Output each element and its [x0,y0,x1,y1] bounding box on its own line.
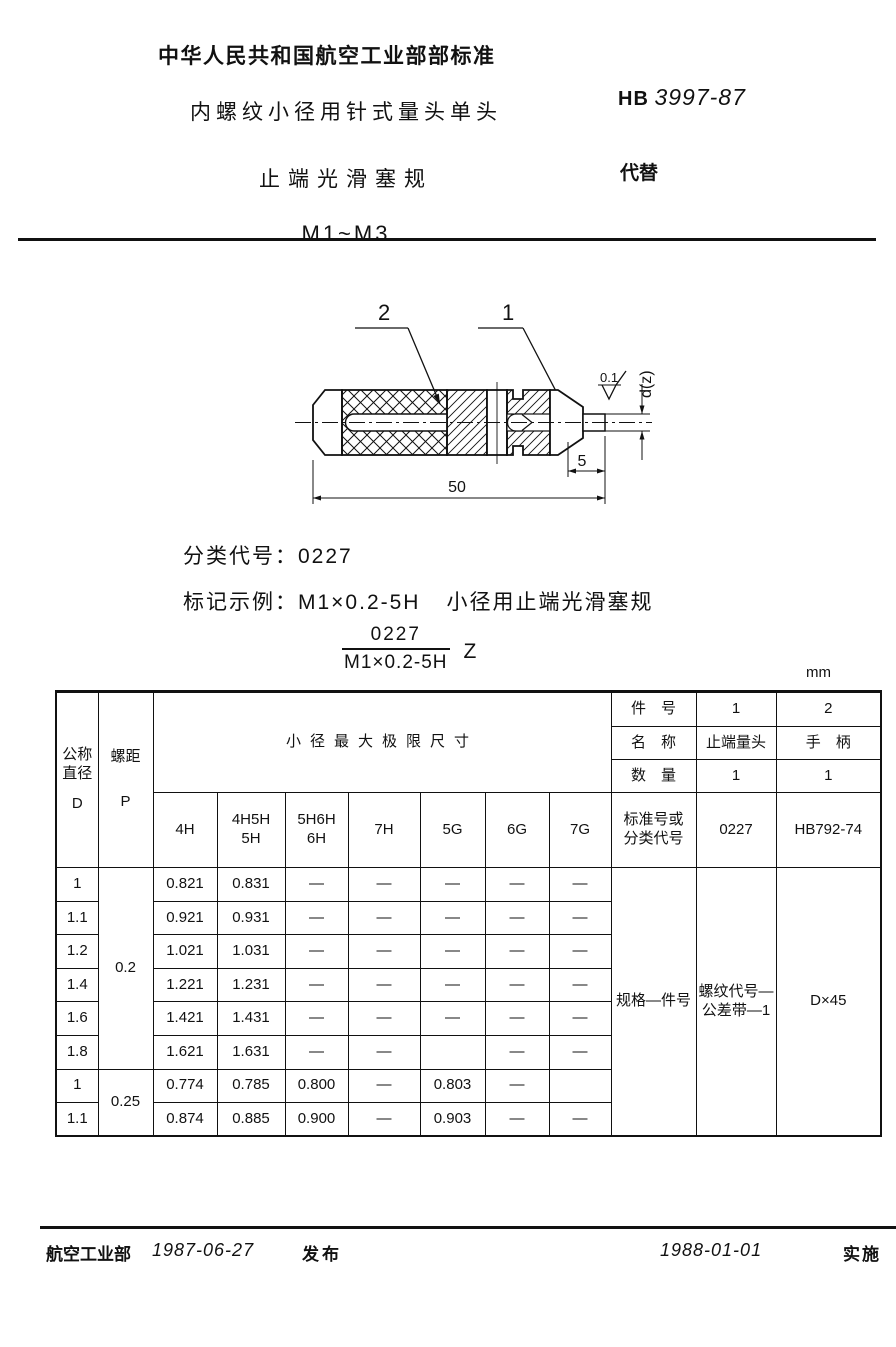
cell-d: 1 [56,1069,98,1103]
cell-val: — [348,1002,420,1036]
cell-val: — [348,1103,420,1137]
tol-col-4H5H: 4H5H 5H [217,793,285,868]
row-header-std-code: 标准号或 分类代号 [611,793,696,868]
part-label-1: 1 [502,300,514,325]
cell-val: — [348,868,420,902]
table-row: 1 0.2 0.821 0.831 — — — — — 规格—件号 螺纹代号— … [56,868,881,902]
cell-val: 1.031 [217,935,285,969]
dim5-arrow-left [568,469,576,474]
cell-d: 1.1 [56,1103,98,1137]
row-header-part-no: 件 号 [611,692,696,727]
cell-val: — [420,1002,485,1036]
cell-val: 0.821 [153,868,217,902]
cell-val: — [549,1103,611,1137]
cell-val: — [485,968,549,1002]
dim5-arrow-right [597,469,605,474]
dim50-arrow-right [597,496,605,501]
tol-col-4H: 4H [153,793,217,868]
unit-label: mm [806,664,831,681]
gauge-drawing: 2 1 0.1 [250,292,660,532]
tol-col-6G: 6G [485,793,549,868]
cell-val: — [285,868,348,902]
cell-val: 1.221 [153,968,217,1002]
col-header-minor-dia-limit: 小径最大极限尺寸 [153,692,611,793]
cell-val: 0.774 [153,1069,217,1103]
cell-val: — [420,901,485,935]
cell-val [549,1069,611,1103]
cell-val: — [485,901,549,935]
cell-val: — [348,968,420,1002]
fraction-suffix: Z [464,640,477,664]
cell-val: 0.903 [420,1103,485,1137]
spec-table: 公称 直径 D 螺距 P 小径最大极限尺寸 件 号 1 2 名 称 止端量头 [55,690,882,1137]
dim-diameter: d(z) [638,370,655,398]
cell-val: — [485,868,549,902]
cell-val: 0.900 [285,1103,348,1137]
cell-val: — [348,1035,420,1069]
tol-col-5H6H: 5H6H 6H [285,793,348,868]
supersedes-label: 代替 [620,158,658,185]
cell-d: 1.4 [56,968,98,1002]
pitch-text: 螺距 [110,748,140,767]
cell-val: — [348,1069,420,1103]
cell-d: 1.2 [56,935,98,969]
org-title: 中华人民共和国航空工业部部标准 [158,40,496,70]
part-no-1: 1 [696,692,776,727]
cell-val: — [285,1035,348,1069]
spec-table-wrap: 公称 直径 D 螺距 P 小径最大极限尺寸 件 号 1 2 名 称 止端量头 [55,690,882,1137]
cell-val: 0.785 [217,1069,285,1103]
dim-pin-length: 5 [578,453,587,470]
tol-col-7G: 7G [549,793,611,868]
cell-val: 0.885 [217,1103,285,1137]
cell-val: — [549,868,611,902]
tol-col-7H: 7H [348,793,420,868]
cell-val: — [485,1069,549,1103]
cell-val: — [549,935,611,969]
std-code-2: HB792-74 [776,793,881,868]
dim-total-length: 50 [448,479,466,496]
footer-issue-date: 1987-06-27 [152,1240,254,1261]
cell-val: 1.631 [217,1035,285,1069]
doc-title-line-3: M1~M3 [150,221,542,247]
cell-val: 0.800 [285,1069,348,1103]
cell-val: — [285,901,348,935]
dimdz-arrow-bottom [640,431,645,440]
cell-val: — [549,1035,611,1069]
part-qty-1: 1 [696,760,776,793]
part-no-2: 2 [776,692,881,727]
part-qty-2: 1 [776,760,881,793]
part-name-1: 止端量头 [696,727,776,760]
nominal-diameter-symbol: D [72,795,83,814]
footer-issue-label: 发布 [302,1240,342,1265]
spec-thread-code: 螺纹代号— 公差带—1 [696,868,776,1137]
cell-val: 1.421 [153,1002,217,1036]
footer-issuer: 航空工业部 [46,1240,131,1265]
spec-part-label: 规格—件号 [611,868,696,1137]
cell-val: — [420,968,485,1002]
cell-val [420,1035,485,1069]
standard-code: 3997-87 [654,84,745,110]
marking-example: M1×0.2-5H [298,591,420,614]
row-header-qty: 数 量 [611,760,696,793]
document-page: 中华人民共和国航空工业部部标准 内螺纹小径用针式量头单头 止端光滑塞规 M1~M… [0,0,896,1347]
cell-val: — [348,901,420,935]
cell-p-group-2: 0.25 [98,1069,153,1136]
classification-line: 分类代号：0227 [183,540,353,570]
marking-label: 标记示例： [183,591,298,614]
doc-title-block: 内螺纹小径用针式量头单头 止端光滑塞规 M1~M3 [150,96,542,247]
cell-d: 1 [56,868,98,902]
classification-code: 0227 [298,545,353,568]
cell-val: 1.621 [153,1035,217,1069]
cell-val: — [485,1002,549,1036]
cell-d: 1.6 [56,1002,98,1036]
footer-effective-date: 1988-01-01 [660,1240,762,1261]
cell-p-group-1: 0.2 [98,868,153,1070]
marking-description: 小径用止端光滑塞规 [446,591,653,614]
cell-val: — [285,1002,348,1036]
cell-val: — [485,1035,549,1069]
cell-val: — [485,1103,549,1137]
marking-line: 标记示例：M1×0.2-5H小径用止端光滑塞规 [183,586,653,616]
dim50-arrow-left [313,496,321,501]
spec-size: D×45 [776,868,881,1137]
cell-val: — [285,968,348,1002]
cell-val: 0.921 [153,901,217,935]
classification-label: 分类代号： [183,545,298,568]
col-header-pitch: 螺距 P [98,692,153,868]
doc-title-line-1: 内螺纹小径用针式量头单头 [150,96,542,126]
cell-val: — [420,935,485,969]
footer-rule [40,1226,896,1229]
cell-val: — [549,968,611,1002]
part-label-2: 2 [378,300,390,325]
nominal-diameter-text: 公称 直径 [62,746,92,784]
std-code-1: 0227 [696,793,776,868]
cell-val: 0.831 [217,868,285,902]
doc-title-line-2: 止端光滑塞规 [150,163,542,193]
cell-val: — [549,1002,611,1036]
cell-d: 1.1 [56,901,98,935]
standard-prefix: HB [618,88,649,110]
cell-val: 1.431 [217,1002,285,1036]
fraction-denominator: M1×0.2-5H [342,650,450,674]
col-header-nominal-diameter: 公称 直径 D [56,692,98,868]
dimdz-arrow-top [640,406,645,415]
standard-number: HB 3997-87 [618,84,746,111]
pitch-symbol: P [120,793,130,812]
cell-val: 0.803 [420,1069,485,1103]
cell-val: — [420,868,485,902]
footer-effective-label: 实施 [843,1240,881,1265]
cell-val: 0.874 [153,1103,217,1137]
fraction-numerator: 0227 [342,624,450,650]
cell-d: 1.8 [56,1035,98,1069]
row-header-name: 名 称 [611,727,696,760]
cell-val: — [485,935,549,969]
roughness-value: 0.1 [600,370,618,385]
tol-col-5G: 5G [420,793,485,868]
cell-val: — [348,935,420,969]
marking-fraction: 0227 M1×0.2-5H Z [342,624,476,674]
cell-val: — [549,901,611,935]
header-rule [18,238,876,241]
cell-val: 1.231 [217,968,285,1002]
cell-val: 0.931 [217,901,285,935]
cell-val: 1.021 [153,935,217,969]
part-name-2: 手 柄 [776,727,881,760]
cell-val: — [285,935,348,969]
